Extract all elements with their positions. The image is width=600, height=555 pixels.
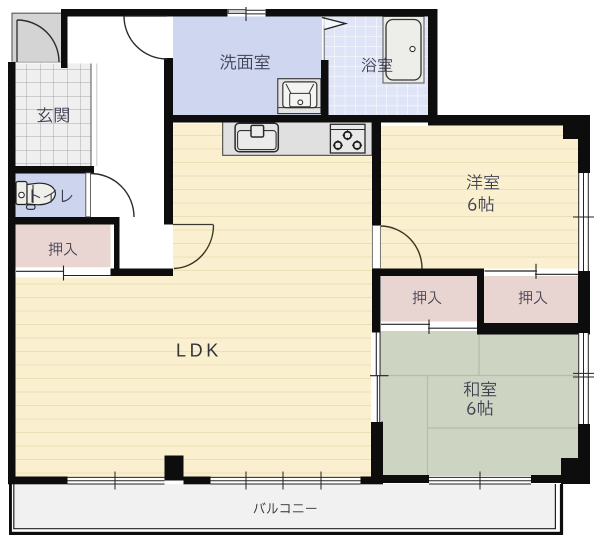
svg-text:LDK: LDK	[176, 341, 222, 361]
